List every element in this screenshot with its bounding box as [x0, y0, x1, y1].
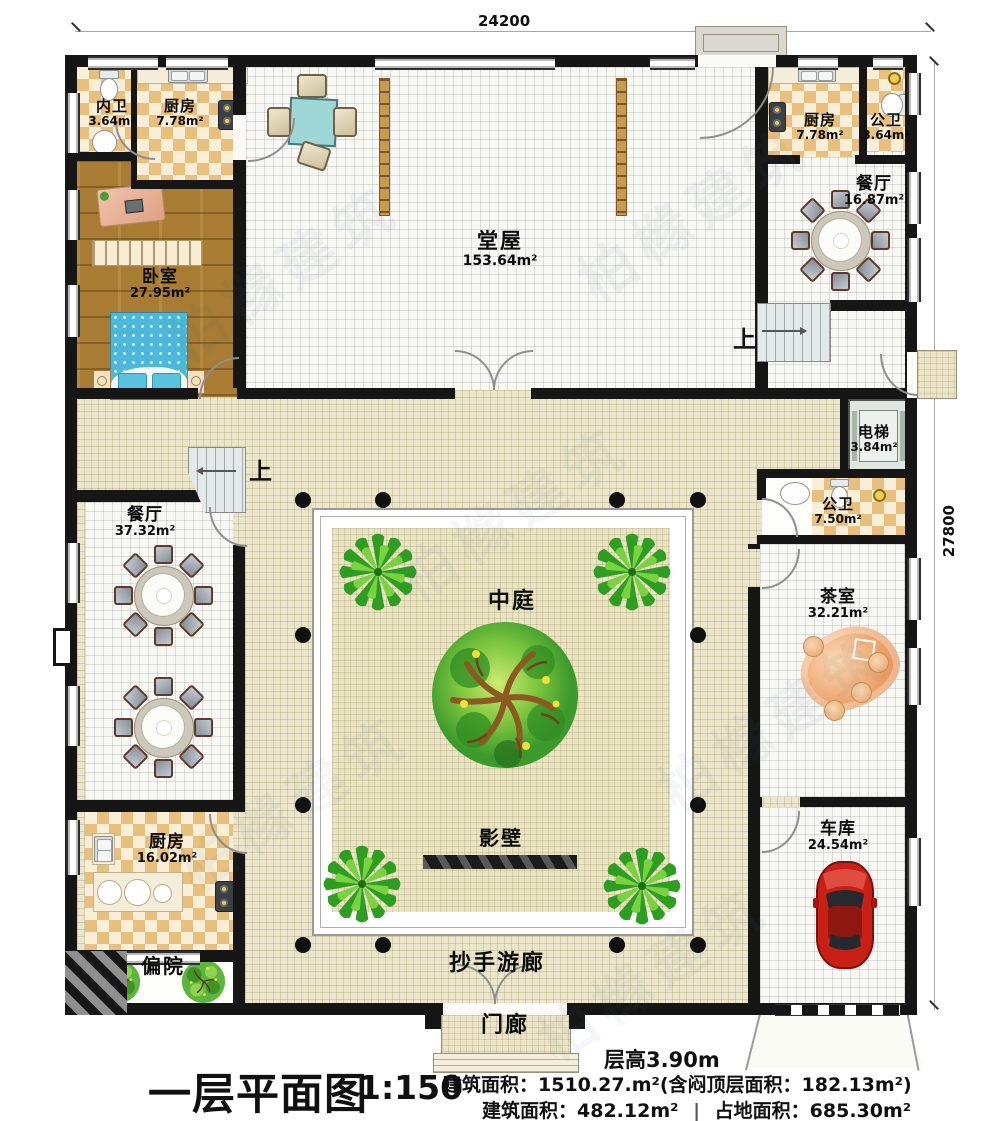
bed — [110, 312, 188, 400]
window — [907, 558, 921, 620]
window — [907, 838, 921, 906]
room-label-porch: 门廊 — [481, 1014, 529, 1039]
room-name: 车库 — [808, 820, 868, 839]
dimension-label-top: 24200 — [478, 12, 530, 30]
room-label-bath-r: 公卫 7.50m² — [814, 496, 861, 526]
wall — [65, 800, 245, 812]
window — [66, 820, 80, 875]
faucet-knob — [873, 489, 886, 502]
room-name: 公卫 — [814, 496, 861, 513]
room-label-screen-wall: 影壁 — [479, 827, 523, 849]
dimension-line-top — [75, 31, 931, 32]
room-label-garage: 车库 24.54m² — [808, 820, 868, 854]
column — [609, 492, 625, 508]
wood-screen — [616, 78, 627, 216]
room-label-side-yard: 偏院 — [141, 955, 185, 977]
chair — [114, 718, 133, 737]
burner — [223, 104, 231, 112]
stairs-up-label: 上 — [249, 452, 272, 486]
chair — [114, 586, 133, 605]
window — [907, 172, 921, 224]
palm-plant — [322, 844, 402, 924]
area-line-1: 建筑面积：1510.27.m²(含闷顶层面积：182.13m²) — [443, 1070, 912, 1097]
room-label-hall: 堂屋 153.64m² — [463, 230, 538, 269]
corner-hatch — [65, 951, 127, 1015]
wall — [233, 67, 246, 115]
room-area: 7.78m² — [796, 129, 843, 142]
desk — [96, 183, 166, 228]
window — [66, 686, 80, 746]
burner — [220, 899, 228, 907]
desk-plant — [99, 191, 109, 201]
room-label-kitchen-tl: 厨房 7.78m² — [156, 98, 203, 128]
chair — [297, 74, 327, 98]
round-table-center — [156, 588, 172, 604]
room-label-dining-l: 餐厅 37.32m² — [115, 506, 175, 540]
wall — [855, 155, 917, 164]
palm-plant — [338, 532, 418, 612]
room-name: 电梯 — [850, 424, 897, 441]
screen-wall — [423, 855, 577, 869]
chair — [333, 107, 357, 137]
room-label-kitchen-bl: 厨房 16.02m² — [137, 833, 197, 867]
porch-pier — [425, 1003, 441, 1029]
room-label-tea-room: 茶室 32.21m² — [808, 588, 868, 622]
room-label-elevator: 电梯 3.84m² — [850, 424, 897, 454]
column — [375, 492, 391, 508]
room-area: 32.21m² — [808, 607, 868, 622]
wall — [840, 397, 848, 469]
room-label-courtyard: 中庭 — [488, 590, 536, 615]
wall — [757, 478, 766, 500]
wood-screen — [379, 78, 390, 216]
burner — [223, 117, 231, 125]
wall — [757, 469, 917, 478]
chair — [154, 677, 173, 696]
bathroom-sink — [780, 482, 810, 505]
column — [690, 937, 706, 953]
room-label-bath-tr: 公卫 3.64m² — [862, 112, 909, 142]
wall — [768, 155, 800, 164]
column — [295, 937, 311, 953]
dining-table-set — [800, 200, 880, 280]
room-area: 7.78m² — [156, 115, 203, 128]
chair — [154, 627, 173, 646]
burner — [773, 119, 781, 127]
room-area: 7.50m² — [814, 513, 861, 526]
cooker-circle — [153, 884, 172, 903]
wall — [800, 797, 917, 807]
room-name: 内卫 — [88, 98, 135, 115]
room-area: 3.64m² — [88, 115, 135, 128]
floor-cushion — [824, 700, 845, 721]
room-name: 卧室 — [130, 268, 190, 287]
column — [295, 797, 311, 813]
window — [907, 648, 921, 705]
column — [295, 492, 311, 508]
room-name: 茶室 — [808, 588, 868, 607]
window — [798, 56, 838, 70]
sink-basin — [97, 850, 113, 862]
room-label-bedroom: 卧室 27.95m² — [130, 268, 190, 302]
wall — [233, 852, 245, 952]
car — [813, 860, 877, 970]
room-name: 公卫 — [862, 112, 909, 129]
chair — [154, 545, 173, 564]
floor-cushion — [851, 682, 872, 703]
square-table — [288, 97, 338, 147]
room-area: 16.02m² — [137, 852, 197, 867]
room-name: 餐厅 — [115, 506, 175, 525]
window — [907, 238, 921, 302]
column — [690, 797, 706, 813]
wall — [748, 587, 760, 805]
chair — [154, 759, 173, 778]
wall — [233, 800, 245, 812]
door-opening — [233, 115, 246, 160]
cooker-circle — [97, 880, 122, 905]
wall — [531, 388, 917, 399]
area-line-2: 建筑面积：482.12m² | 占地面积：685.30m² — [482, 1096, 911, 1121]
sink-basin — [189, 71, 205, 81]
wall — [237, 388, 455, 399]
wall — [233, 545, 245, 800]
sink-basin — [801, 71, 817, 80]
window — [873, 56, 903, 70]
floor-plan: 24200 27800 — [0, 0, 1000, 1121]
window — [66, 93, 80, 153]
chair — [791, 231, 810, 250]
garage-door — [775, 1004, 900, 1016]
dimension-label-right: 27800 — [940, 505, 958, 557]
room-area: 3.84m² — [850, 441, 897, 454]
sink-basin — [97, 839, 113, 851]
round-table-center — [833, 233, 849, 249]
column — [295, 627, 311, 643]
chair — [871, 231, 890, 250]
room-name: 厨房 — [156, 98, 203, 115]
window — [66, 543, 80, 603]
room-area: 16.87m² — [844, 194, 904, 209]
dining-table-set — [123, 687, 203, 767]
floor-cushion — [868, 652, 889, 673]
window — [66, 285, 80, 337]
chair — [194, 586, 213, 605]
computer-monitor — [125, 199, 144, 214]
kitchen-sink — [94, 836, 113, 862]
stove — [769, 102, 786, 132]
window — [88, 56, 158, 70]
building-area: 建筑面积：482.12m² — [482, 1100, 678, 1121]
chair — [831, 272, 850, 291]
stairs-arrow — [196, 467, 203, 475]
room-name: 厨房 — [137, 833, 197, 852]
wall — [131, 180, 246, 189]
dining-table-set — [123, 555, 203, 635]
room-area: 27.95m² — [130, 287, 190, 302]
column — [690, 492, 706, 508]
side-porch — [917, 350, 957, 399]
dimension-line-right — [934, 62, 935, 1010]
window — [375, 57, 555, 70]
divider: | — [693, 1100, 700, 1121]
driveway — [745, 1015, 925, 1068]
stairs-right — [757, 303, 831, 362]
door-opening — [698, 55, 776, 67]
burner — [773, 106, 781, 114]
land-area: 占地面积：685.30m² — [715, 1100, 911, 1121]
room-area: 24.54m² — [808, 839, 868, 854]
wall-niche — [53, 628, 73, 666]
room-label-veranda: 抄手游廊 — [449, 952, 545, 977]
wall — [748, 807, 760, 1003]
room-name: 餐厅 — [844, 175, 904, 194]
palm-plant — [602, 846, 682, 926]
round-table-center — [156, 720, 172, 736]
room-name: 厨房 — [796, 112, 843, 129]
faucet-knob — [888, 72, 901, 85]
window — [650, 57, 695, 70]
room-label-kitchen-tr: 厨房 7.78m² — [796, 112, 843, 142]
nightstand-knob — [97, 376, 107, 386]
burner — [220, 885, 228, 893]
stairs-arrow-line — [200, 470, 236, 472]
courtyard-tree — [428, 618, 583, 773]
window — [166, 56, 228, 70]
porch-pier — [569, 1003, 585, 1029]
room-area: 153.64m² — [463, 254, 538, 270]
wall — [748, 797, 762, 807]
room-area: 3.64m² — [862, 129, 909, 142]
wall — [748, 544, 760, 549]
kitchen-sink — [798, 68, 836, 82]
stairs-arrow — [800, 327, 807, 335]
cooker-circle — [124, 879, 151, 906]
palm-plant — [592, 532, 672, 612]
room-label-inner-bath: 内卫 3.64m² — [88, 98, 135, 128]
column — [609, 937, 625, 953]
room-area: 37.32m² — [115, 525, 175, 540]
wall — [65, 388, 198, 399]
wall — [77, 152, 131, 161]
window — [66, 190, 80, 240]
wall — [830, 300, 917, 311]
wall — [233, 160, 246, 388]
window — [907, 73, 921, 115]
plan-title: 一层平面图 — [148, 1060, 368, 1121]
room-name: 堂屋 — [463, 230, 538, 254]
wall — [233, 952, 245, 1003]
wardrobe — [92, 240, 202, 266]
column — [690, 627, 706, 643]
kitchen-sink — [168, 68, 208, 83]
sink-basin — [818, 71, 834, 80]
column — [375, 937, 391, 953]
sink-basin — [171, 71, 187, 81]
stove — [215, 881, 235, 912]
room-label-dining-tr: 餐厅 16.87m² — [844, 175, 904, 209]
chair — [194, 718, 213, 737]
floor-cushion — [803, 636, 824, 657]
tree — [180, 958, 227, 1005]
stairs-up-label: 上 — [733, 320, 756, 354]
nightstand-knob — [191, 376, 201, 386]
